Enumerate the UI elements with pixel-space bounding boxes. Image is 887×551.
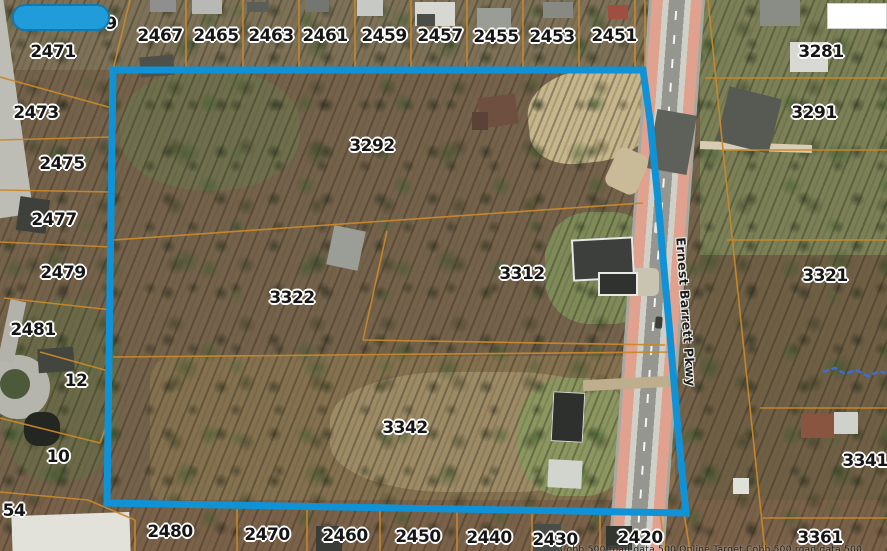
map-canvas[interactable]: 2471247324752477247924811210549246724652… bbox=[0, 0, 887, 551]
parcel-label-2451[interactable]: 2451 bbox=[591, 26, 636, 46]
parcel-label-2455[interactable]: 2455 bbox=[473, 27, 518, 47]
highlight-blob bbox=[12, 4, 110, 31]
parcel-label-3341[interactable]: 3341 bbox=[842, 451, 887, 471]
parcel-label-2480[interactable]: 2480 bbox=[147, 522, 192, 542]
parcel-label-2450[interactable]: 2450 bbox=[395, 527, 440, 547]
attribution-text: Cobb 500 road data 500 Online Target Cob… bbox=[560, 545, 862, 551]
parcel-label-2481[interactable]: 2481 bbox=[10, 320, 55, 340]
parcel-label-2461[interactable]: 2461 bbox=[302, 26, 347, 46]
parcel-label-2477[interactable]: 2477 bbox=[31, 210, 76, 230]
parcel-label-12[interactable]: 12 bbox=[65, 371, 88, 391]
parcel-label-3342[interactable]: 3342 bbox=[382, 418, 427, 438]
legend-cutoff-box bbox=[827, 3, 887, 29]
parcel-label-layer: 2471247324752477247924811210549246724652… bbox=[0, 0, 887, 551]
parcel-label-2479[interactable]: 2479 bbox=[40, 263, 85, 283]
parcel-label-2467[interactable]: 2467 bbox=[137, 26, 182, 46]
parcel-label-2463[interactable]: 2463 bbox=[248, 26, 293, 46]
parcel-label-3292[interactable]: 3292 bbox=[349, 136, 394, 156]
parcel-label-3281[interactable]: 3281 bbox=[798, 42, 843, 62]
parcel-label-2471[interactable]: 2471 bbox=[30, 42, 75, 62]
parcel-label-3291[interactable]: 3291 bbox=[791, 103, 836, 123]
parcel-label-2465[interactable]: 2465 bbox=[193, 26, 238, 46]
parcel-label-2457[interactable]: 2457 bbox=[417, 26, 462, 46]
parcel-label-54[interactable]: 54 bbox=[3, 501, 26, 521]
parcel-label-10[interactable]: 10 bbox=[47, 447, 70, 467]
parcel-label-2440[interactable]: 2440 bbox=[466, 528, 511, 548]
parcel-label-2453[interactable]: 2453 bbox=[529, 27, 574, 47]
parcel-label-2460[interactable]: 2460 bbox=[322, 526, 367, 546]
parcel-label-3322[interactable]: 3322 bbox=[269, 288, 314, 308]
parcel-label-2475[interactable]: 2475 bbox=[39, 154, 84, 174]
parcel-label-2459[interactable]: 2459 bbox=[361, 26, 406, 46]
parcel-label-3312[interactable]: 3312 bbox=[499, 264, 544, 284]
parcel-label-2470[interactable]: 2470 bbox=[244, 525, 289, 545]
parcel-label-3321[interactable]: 3321 bbox=[802, 266, 847, 286]
parcel-label-2473[interactable]: 2473 bbox=[13, 103, 58, 123]
